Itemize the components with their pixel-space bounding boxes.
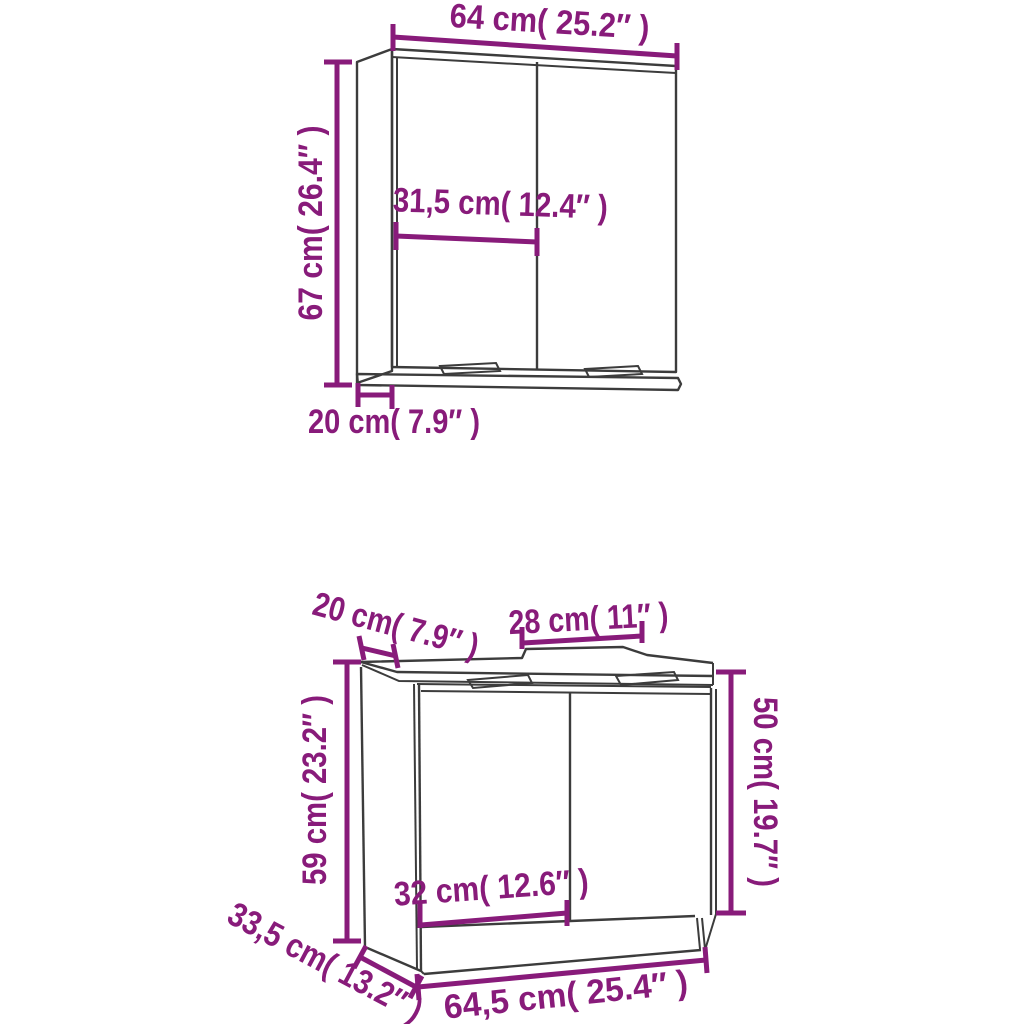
sink-plinth-right-edge-outer xyxy=(702,918,705,949)
mirror-inner-width-dimension: 31,5 cm( 12.4″ ) xyxy=(392,181,608,256)
mirror-width-label: 64 cm( 25.2″ ) xyxy=(449,0,651,47)
mirror-height-dimension: 67 cm( 26.4″ ) xyxy=(292,62,352,385)
dimension-tick xyxy=(417,974,419,1000)
sink-side-depth-label: 33,5 cm( 13.2″ ) xyxy=(221,895,429,1024)
sink-width-dimension: 64,5 cm( 25.4″ ) xyxy=(417,947,707,1024)
sink-right-side-bottom-edge xyxy=(705,914,716,950)
sink-side-back-edge xyxy=(361,667,365,947)
sink-cutout-width-label: 28 cm( 11″ ) xyxy=(508,596,670,642)
mirror-cabinet-top-inner-edge xyxy=(392,57,676,73)
sink-inner-width-label: 32 cm( 12.6″ ) xyxy=(393,862,590,914)
sink-height-label: 59 cm( 23.2″ ) xyxy=(296,695,334,885)
mirror-depth-label: 20 cm( 7.9″ ) xyxy=(308,403,480,441)
dimension-tick xyxy=(359,636,364,660)
mirror-height-label: 67 cm( 26.4″ ) xyxy=(292,126,330,321)
mirror-cabinet-bottom-shelf xyxy=(357,374,681,390)
mirror-cabinet-side-panel xyxy=(357,49,392,383)
dimension-line xyxy=(396,236,537,242)
dimension-diagram: 64 cm( 25.2″ ) 67 cm( 26.4″ ) 31,5 cm( 1… xyxy=(0,0,1024,1024)
dimension-line xyxy=(362,648,396,656)
sink-height-dimension: 59 cm( 23.2″ ) xyxy=(296,662,361,941)
sink-inner-width-dimension: 32 cm( 12.6″ ) xyxy=(393,862,590,928)
sink-door-height-dimension: 50 cm( 19.7″ ) xyxy=(716,672,784,913)
sink-doors-top-edge xyxy=(421,691,711,694)
dimension-tick xyxy=(705,947,707,973)
sink-side-depth-dimension: 33,5 cm( 13.2″ ) xyxy=(221,895,429,1024)
sink-cutout-width-dimension: 28 cm( 11″ ) xyxy=(508,596,670,649)
sink-plinth-right-edge xyxy=(697,918,700,949)
mirror-inner-width-label: 31,5 cm( 12.4″ ) xyxy=(392,181,608,226)
sink-front-left-edge-inner xyxy=(414,684,417,969)
mirror-depth-dimension: 20 cm( 7.9″ ) xyxy=(308,383,480,441)
sink-door-height-label: 50 cm( 19.7″ ) xyxy=(746,697,784,887)
sink-cabinet-drawing xyxy=(361,647,716,974)
sink-plinth-left-corner xyxy=(421,971,424,974)
sink-top-depth-dimension: 20 cm( 7.9″ ) xyxy=(309,585,483,668)
dimension-tick xyxy=(393,644,398,668)
diagram-svg: 64 cm( 25.2″ ) 67 cm( 26.4″ ) 31,5 cm( 1… xyxy=(0,0,1024,1024)
